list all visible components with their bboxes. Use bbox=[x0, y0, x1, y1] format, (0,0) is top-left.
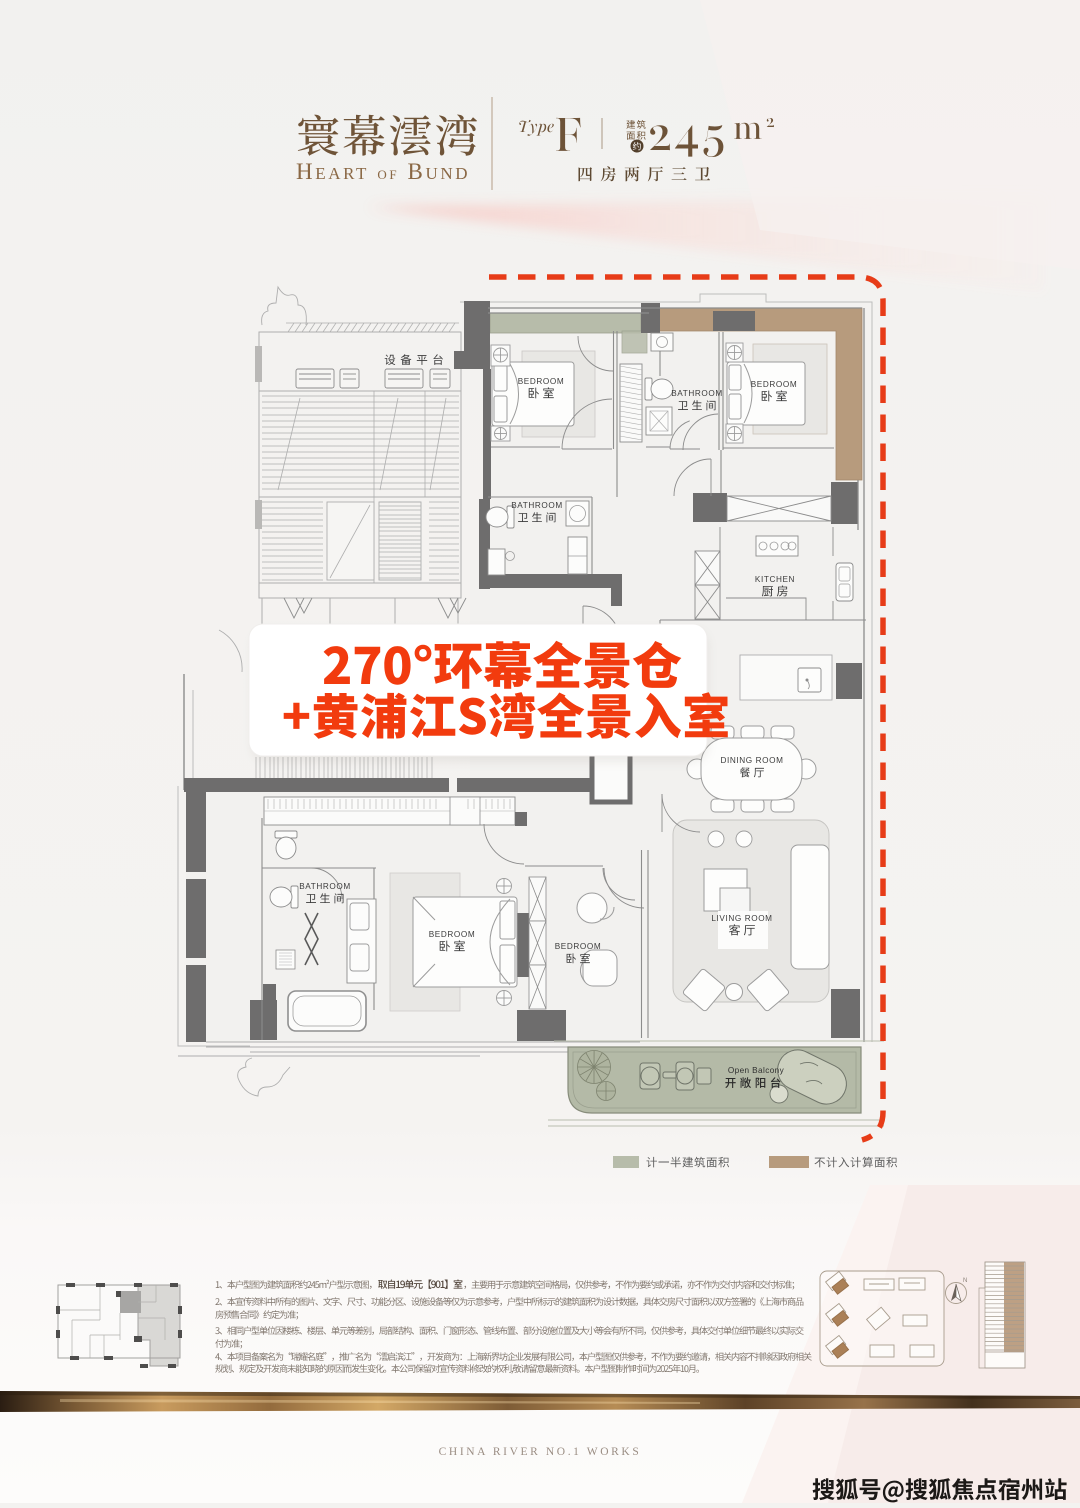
svg-text:Open Balcony: Open Balcony bbox=[728, 1066, 785, 1075]
svg-text:N: N bbox=[963, 1278, 967, 1284]
svg-text:BEDROOM: BEDROOM bbox=[518, 377, 565, 386]
svg-text:BEDROOM: BEDROOM bbox=[429, 930, 476, 939]
svg-text:BATHROOM: BATHROOM bbox=[511, 501, 563, 510]
svg-text:DINING ROOM: DINING ROOM bbox=[720, 756, 783, 765]
svg-text:BEDROOM: BEDROOM bbox=[751, 380, 798, 389]
svg-text:BATHROOM: BATHROOM bbox=[671, 389, 723, 398]
svg-text:LIVING ROOM: LIVING ROOM bbox=[711, 914, 772, 923]
svg-text:BEDROOM: BEDROOM bbox=[555, 942, 602, 951]
svg-text:CHINA RIVER NO.1 WORKS: CHINA RIVER NO.1 WORKS bbox=[439, 1446, 642, 1458]
svg-text:BATHROOM: BATHROOM bbox=[299, 882, 351, 891]
svg-text:KITCHEN: KITCHEN bbox=[755, 575, 795, 584]
